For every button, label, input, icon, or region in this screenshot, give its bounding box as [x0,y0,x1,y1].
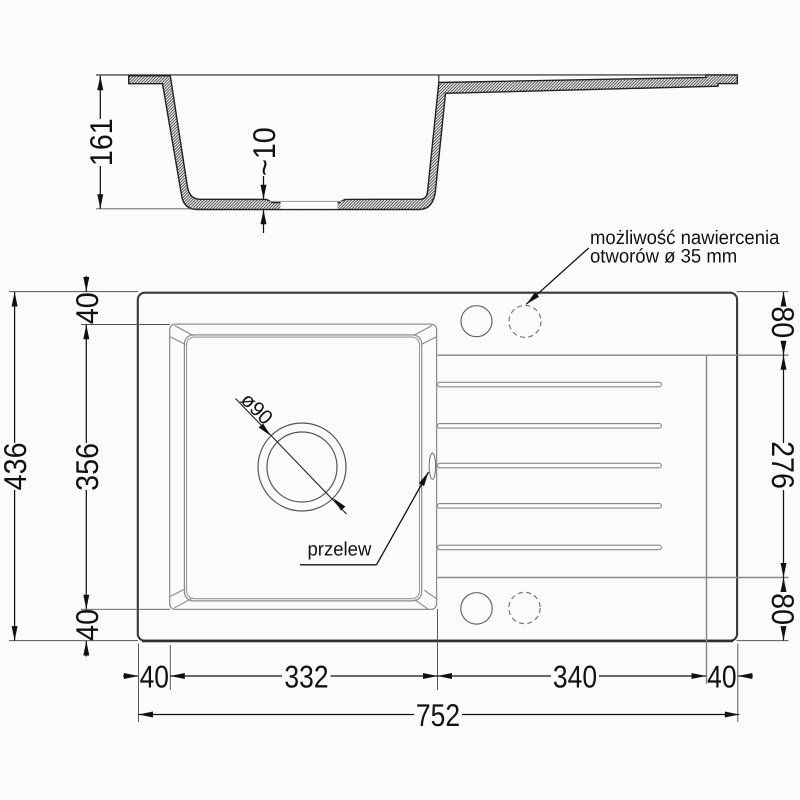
svg-text:436: 436 [0,442,33,490]
svg-text:~10: ~10 [246,127,282,176]
svg-text:332: 332 [284,659,328,695]
svg-text:161: 161 [83,118,119,166]
svg-text:40: 40 [69,292,105,324]
svg-text:otworów ø 35 mm: otworów ø 35 mm [590,245,737,267]
svg-text:40: 40 [69,609,105,641]
svg-text:80: 80 [765,306,800,338]
svg-text:276: 276 [765,441,800,489]
svg-text:356: 356 [69,443,105,491]
svg-text:40: 40 [140,659,169,695]
svg-text:80: 80 [765,593,800,625]
svg-text:340: 340 [553,659,597,695]
svg-text:40: 40 [707,659,736,695]
svg-text:752: 752 [416,697,460,733]
svg-text:przelew: przelew [308,539,373,561]
